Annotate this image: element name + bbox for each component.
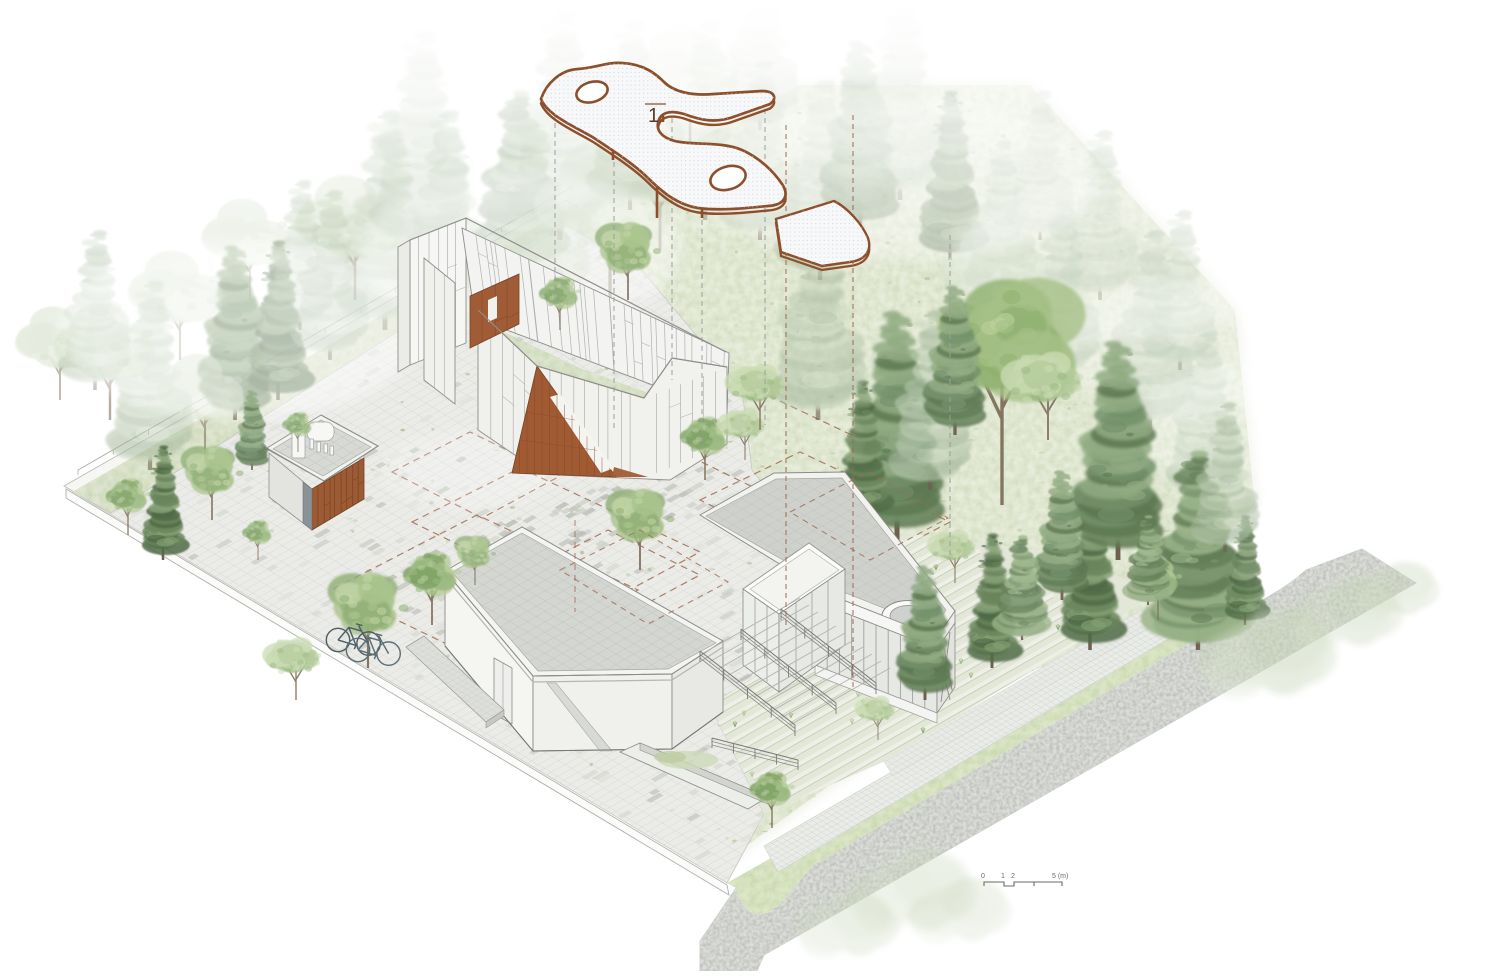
- svg-text:2: 2: [1011, 873, 1015, 880]
- svg-text:1: 1: [648, 105, 659, 127]
- svg-text:0: 0: [981, 873, 985, 880]
- svg-text:5 (m): 5 (m): [1052, 873, 1068, 880]
- svg-text:1: 1: [1001, 873, 1005, 880]
